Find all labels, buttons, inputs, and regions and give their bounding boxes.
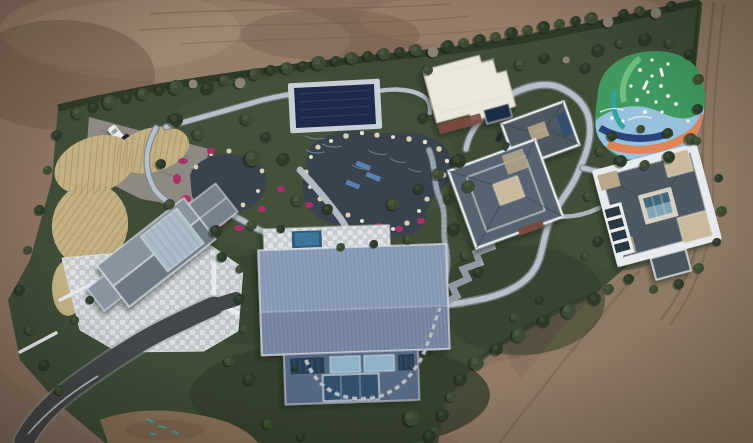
aerial-photo: Top-down aerial photo: a private estate … — [0, 0, 753, 443]
photo-vignette — [0, 0, 753, 443]
aerial-photo-canvas — [0, 0, 753, 443]
